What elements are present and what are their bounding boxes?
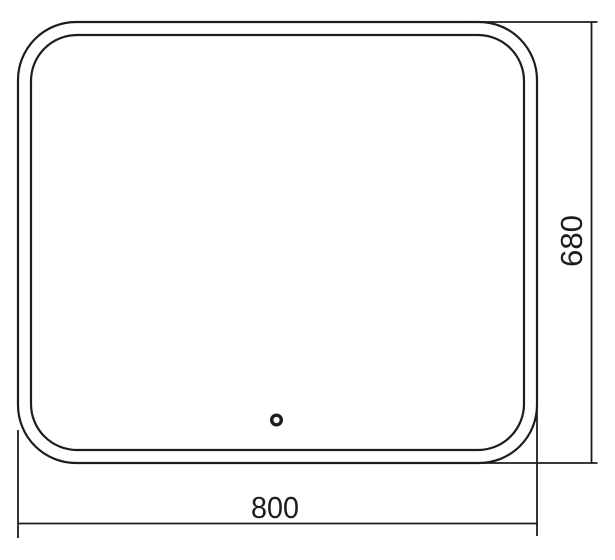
touch-sensor-icon xyxy=(272,415,282,425)
drawing-svg: 680 800 xyxy=(0,0,615,560)
height-dimension-label: 680 xyxy=(554,215,589,267)
mirror-inner-outline xyxy=(31,35,524,450)
dimension-drawing: 680 800 xyxy=(0,0,615,560)
mirror-outer-outline xyxy=(18,22,537,463)
width-dimension-label: 800 xyxy=(251,490,299,525)
